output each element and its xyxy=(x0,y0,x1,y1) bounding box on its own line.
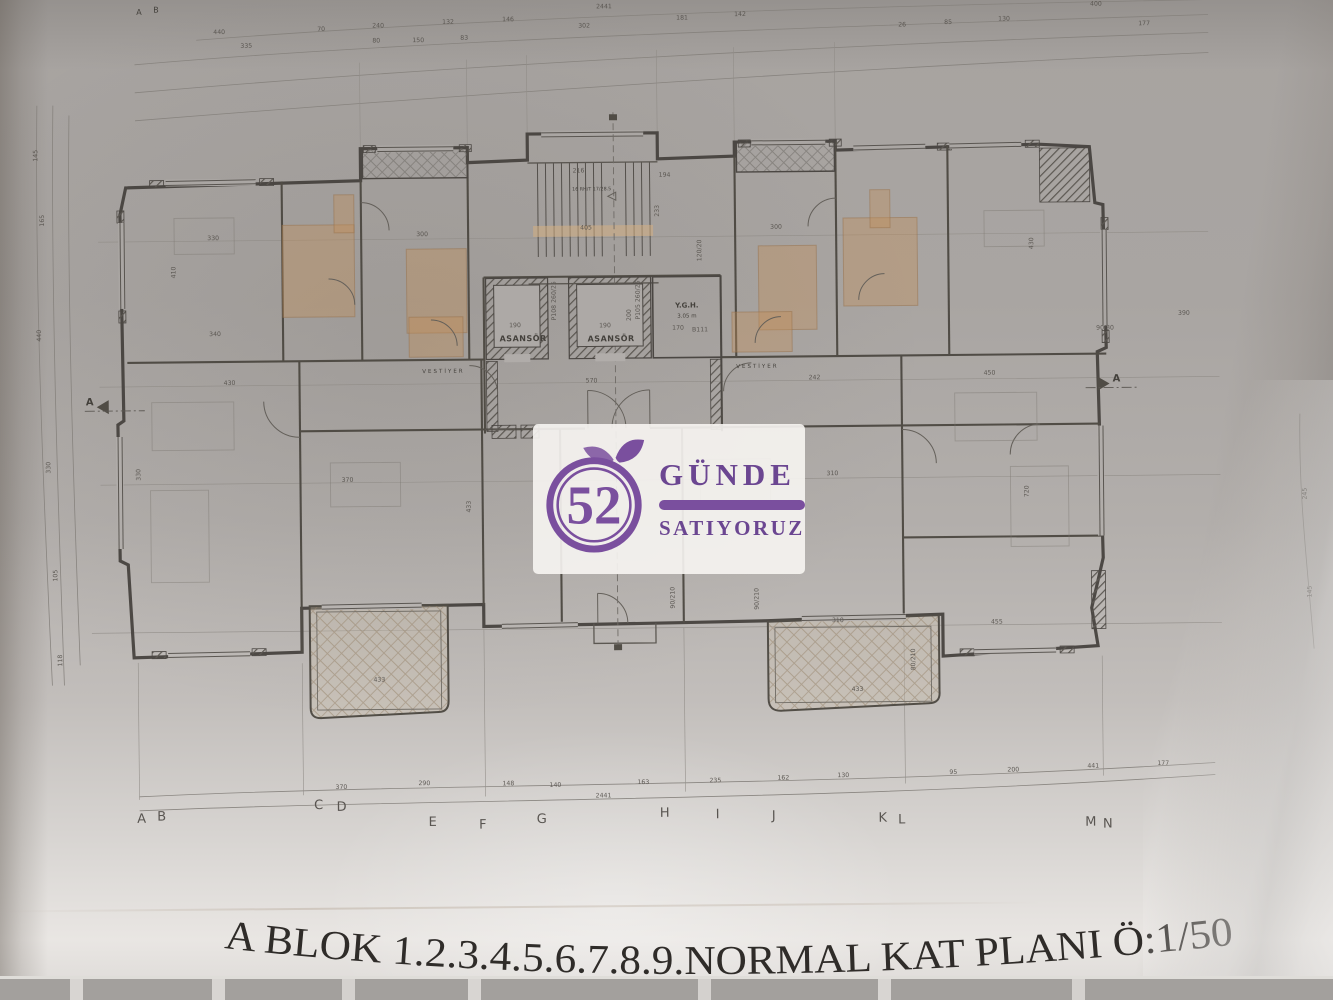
dimension-number: 90/210 xyxy=(670,587,677,609)
leaf-icon xyxy=(616,439,644,462)
dimension-number: B111 xyxy=(692,326,708,333)
dimension-number: 140 xyxy=(549,782,561,789)
dimension-number: 95 xyxy=(949,769,957,776)
floor-plan: 2441302181142440702401321464001771308526… xyxy=(31,0,1316,842)
room-label: A xyxy=(136,8,142,17)
dimension-number: 194 xyxy=(659,172,671,179)
dimension-number: 245 xyxy=(1302,488,1309,500)
dimension-number: 330 xyxy=(207,235,219,242)
plan-title: A BLOK 1.2.3.4.5.6.7.8.9.NORMAL KAT PLAN… xyxy=(223,908,1240,983)
axis-letters: ABCDEFGHIJKLMN xyxy=(137,790,1113,840)
dimension-number: 441 xyxy=(1087,763,1099,770)
axis-letter: K xyxy=(878,811,887,826)
dimension-number: 430 xyxy=(224,380,236,387)
dimension-number: 145 xyxy=(32,150,39,162)
dimension-number: P105 260/25 xyxy=(635,280,642,319)
dimension-number: 162 xyxy=(777,775,789,782)
dimension-number: 190 xyxy=(509,322,521,329)
dimension-number: 132 xyxy=(442,19,454,26)
dimension-number: 216 xyxy=(573,168,585,175)
dimension-number: 410 xyxy=(170,266,177,278)
dimension-number: 240 xyxy=(372,22,384,29)
axis-letter: C xyxy=(314,798,323,813)
dimension-number: 146 xyxy=(502,16,514,23)
plan-title-text: A BLOK 1.2.3.4.5.6.7.8.9.NORMAL KAT PLAN… xyxy=(223,908,1235,983)
dimension-number: 290 xyxy=(418,780,430,787)
dimension-number: 26 xyxy=(898,21,906,28)
paper-photo: 2441302181142440702401321464001771308526… xyxy=(0,0,1333,1000)
dimension-number: 70 xyxy=(317,26,325,33)
dimension-number: 440 xyxy=(213,29,225,36)
brand-text: GÜNDE SATIYORUZ xyxy=(659,457,805,541)
dimension-number: 130 xyxy=(998,15,1010,22)
dimension-number: 390 xyxy=(1178,310,1190,317)
dimension-number: 90/30 xyxy=(1096,324,1114,331)
axis-letter: A xyxy=(137,812,146,827)
dimension-number: 200 xyxy=(626,309,633,321)
dimension-number: 200 xyxy=(1007,766,1019,773)
dimension-number: 163 xyxy=(637,779,649,786)
room-label: 16 RH/T 17/28.5 xyxy=(572,186,611,192)
brand-word-1: GÜNDE xyxy=(659,457,796,493)
dimension-number: 118 xyxy=(57,655,64,667)
dimension-number: 330 xyxy=(135,469,142,481)
dimension-number: 370 xyxy=(335,784,347,791)
room-label: ASANSÖR xyxy=(588,333,635,343)
watermark-logo: 52 xyxy=(539,429,651,569)
logo-number: 52 xyxy=(567,475,622,536)
dimension-number: 370 xyxy=(342,477,354,484)
dimension-number: 120/20 xyxy=(696,239,703,261)
room-label: ASANSÖR xyxy=(500,333,547,343)
dimension-number: 2441 xyxy=(596,792,612,799)
dimension-number: P108 260/25 xyxy=(551,281,558,320)
dimension-number: 235 xyxy=(709,777,721,784)
axis-letter: F xyxy=(479,817,487,832)
outer-walls xyxy=(115,129,1109,664)
dimension-number: 335 xyxy=(240,43,252,50)
dimension-number: 150 xyxy=(412,37,424,44)
construction-lines xyxy=(35,0,1316,812)
axis-letter: H xyxy=(660,806,670,821)
brand-word-2: SATIYORUZ xyxy=(659,516,805,541)
axis-letter: N xyxy=(1103,816,1113,831)
dimension-number: 148 xyxy=(502,780,514,787)
dimension-number: 181 xyxy=(676,15,688,22)
dimension-number: 720 xyxy=(1024,485,1031,497)
dimension-number: 300 xyxy=(416,231,428,238)
dimension-number: 85 xyxy=(944,19,952,26)
dimension-number: 190 xyxy=(599,322,611,329)
room-label: B xyxy=(153,6,159,15)
axis-letter: M xyxy=(1085,815,1096,830)
dimension-number: 440 xyxy=(36,330,43,342)
dimension-number: 330 xyxy=(45,462,52,474)
dimension-number: 302 xyxy=(578,22,590,29)
axis-letter: I xyxy=(716,807,720,822)
dimension-number: 433 xyxy=(373,676,385,683)
dimension-number: 233 xyxy=(654,205,661,217)
dimension-number: 300 xyxy=(770,224,782,231)
axis-letter: L xyxy=(898,812,906,827)
dimension-number: 242 xyxy=(809,374,821,381)
dimension-number: 310 xyxy=(832,617,844,624)
dimension-number: 400 xyxy=(1090,1,1102,8)
dimension-number: 142 xyxy=(734,11,746,18)
dimension-number: 130 xyxy=(837,772,849,779)
windows xyxy=(113,126,1111,664)
dimension-number: 433 xyxy=(466,501,473,513)
dimension-number: 450 xyxy=(984,370,996,377)
room-label: VESTİYER xyxy=(736,363,778,370)
axis-letter: G xyxy=(537,812,547,827)
axis-letter: D xyxy=(337,800,347,815)
dimension-number: 105 xyxy=(52,570,59,582)
section-markers xyxy=(85,376,1140,414)
dimension-number: 405 xyxy=(580,224,592,231)
dimension-number: 80 xyxy=(372,37,380,44)
axis-letter: E xyxy=(429,815,437,830)
room-label: 3.05 m xyxy=(677,313,696,319)
dimension-number: 80/210 xyxy=(910,648,917,670)
dimension-number: 170 xyxy=(672,325,684,332)
dimension-number: 433 xyxy=(852,686,864,693)
dimension-number: 90/210 xyxy=(754,588,761,610)
dimension-number: 145 xyxy=(1307,586,1314,598)
dimension-number: 2441 xyxy=(596,3,612,10)
dimension-number: 83 xyxy=(460,35,468,42)
dimension-number: 455 xyxy=(991,619,1003,626)
dimension-number: 177 xyxy=(1157,760,1169,767)
dimension-number: 570 xyxy=(586,377,598,384)
room-label: A xyxy=(86,397,94,408)
brand-divider xyxy=(659,500,805,510)
dimension-number: 310 xyxy=(826,470,838,477)
dimension-number: 165 xyxy=(39,215,46,227)
axis-letter: J xyxy=(771,809,776,824)
dimension-number: 340 xyxy=(209,331,221,338)
dimension-number: 177 xyxy=(1138,20,1150,27)
background-strip xyxy=(0,976,1333,1000)
dimension-number: 430 xyxy=(1028,237,1035,249)
room-label: Y.G.H. xyxy=(674,301,699,309)
svg-text:A BLOK 1.2.3.4.5.6.7.8.9.NORMA: A BLOK 1.2.3.4.5.6.7.8.9.NORMAL KAT PLAN… xyxy=(223,908,1235,983)
room-label: A xyxy=(1113,373,1121,384)
axis-letter: B xyxy=(157,810,166,825)
watermark: 52 GÜNDE SATIYORUZ xyxy=(533,424,805,574)
room-label: VESTİYER xyxy=(422,368,464,375)
